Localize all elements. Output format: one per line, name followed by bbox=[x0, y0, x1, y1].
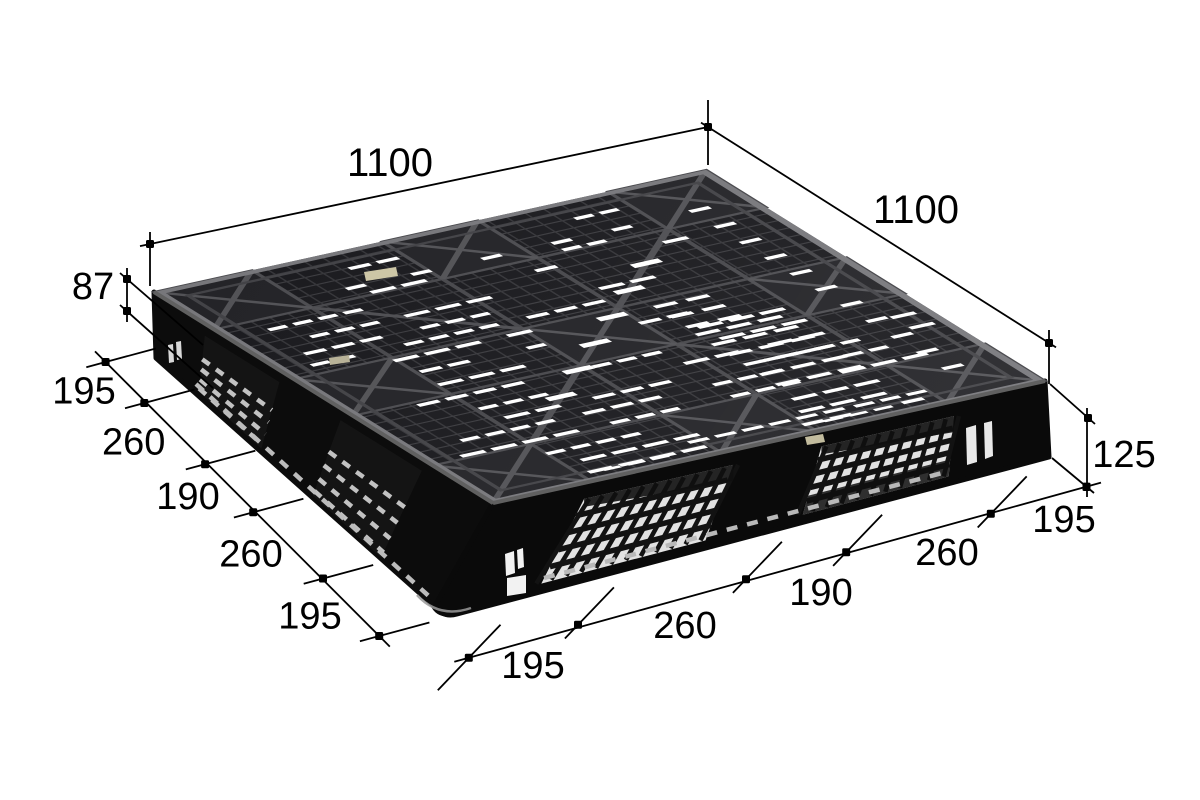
svg-text:195: 195 bbox=[278, 595, 341, 637]
svg-text:87: 87 bbox=[72, 266, 114, 308]
svg-text:260: 260 bbox=[653, 605, 716, 647]
svg-text:1100: 1100 bbox=[873, 188, 959, 232]
svg-text:260: 260 bbox=[102, 422, 165, 464]
svg-text:190: 190 bbox=[156, 476, 219, 518]
svg-text:125: 125 bbox=[1092, 434, 1155, 476]
svg-text:195: 195 bbox=[1032, 499, 1095, 541]
svg-text:195: 195 bbox=[501, 645, 564, 687]
svg-text:1100: 1100 bbox=[347, 141, 433, 185]
svg-text:260: 260 bbox=[915, 532, 978, 574]
svg-text:190: 190 bbox=[789, 572, 852, 614]
svg-text:260: 260 bbox=[219, 533, 282, 575]
svg-text:195: 195 bbox=[52, 371, 115, 413]
